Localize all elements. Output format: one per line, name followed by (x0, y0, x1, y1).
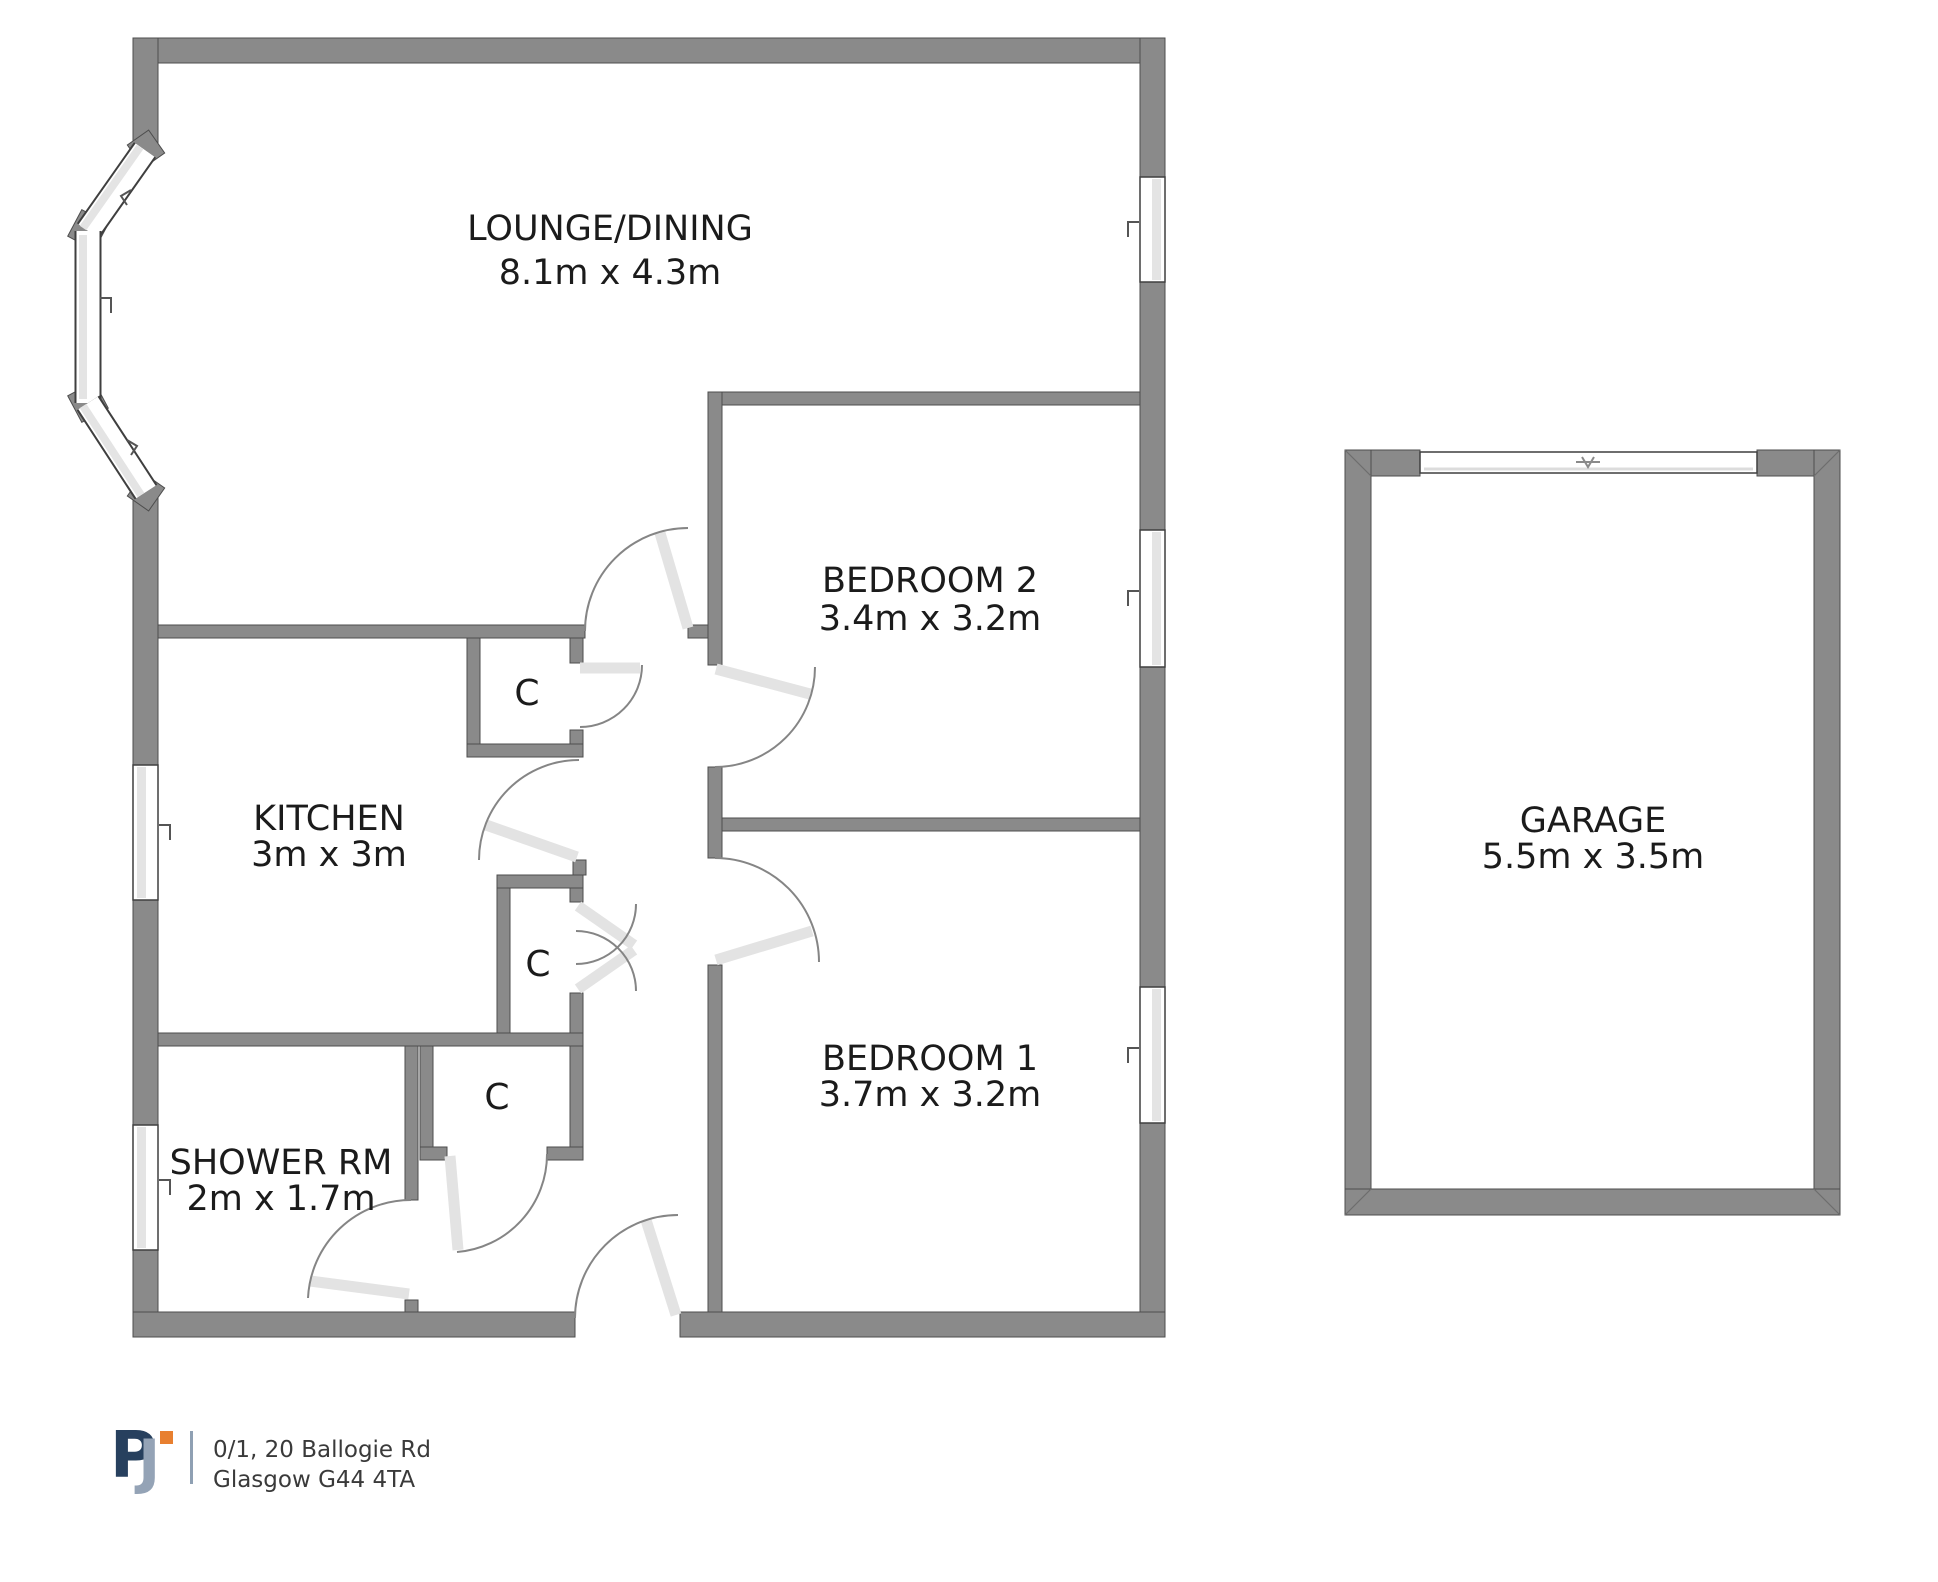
label-bedroom1-dims: 3.7m x 3.2m (819, 1075, 1041, 1115)
room-labels: LOUNGE/DINING 8.1m x 4.3m BEDROOM 2 3.4m… (170, 209, 1042, 1219)
floorplan-page: LOUNGE/DINING 8.1m x 4.3m BEDROOM 2 3.4m… (0, 0, 1938, 1582)
property-address: 0/1, 20 Ballogie Rd Glasgow G44 4TA (213, 1435, 431, 1495)
label-kitchen-name: KITCHEN (253, 799, 405, 839)
label-lounge-dims: 8.1m x 4.3m (499, 253, 721, 293)
garage: GARAGE 5.5m x 3.5m (1345, 450, 1840, 1215)
label-kitchen-dims: 3m x 3m (251, 835, 407, 875)
door-leaf-shower (310, 1281, 409, 1294)
door-leaf-entrance (646, 1220, 676, 1315)
label-bedroom1-name: BEDROOM 1 (822, 1039, 1038, 1079)
window-latch-icon (100, 298, 111, 313)
logo-divider (190, 1431, 193, 1484)
door-arc-closet3 (457, 1154, 547, 1252)
floor-plan-svg: LOUNGE/DINING 8.1m x 4.3m BEDROOM 2 3.4m… (0, 0, 1938, 1582)
window-latch-icon (1128, 591, 1139, 606)
label-closet-3: C (484, 1077, 509, 1118)
window-latch-icon (1128, 222, 1139, 237)
label-lounge-name: LOUNGE/DINING (467, 209, 753, 249)
door-arc-closet1 (580, 665, 642, 727)
door-leaf-closet3 (450, 1156, 458, 1250)
footer: P J 0/1, 20 Ballogie Rd Glasgow G44 4TA (105, 1422, 525, 1512)
main-house: LOUNGE/DINING 8.1m x 4.3m BEDROOM 2 3.4m… (68, 38, 1165, 1337)
label-garage-name: GARAGE (1520, 801, 1667, 841)
address-line-2: Glasgow G44 4TA (213, 1465, 431, 1495)
label-closet-2: C (525, 944, 550, 985)
garage-door (1420, 452, 1757, 473)
door-leaf-kitchen (486, 825, 577, 857)
label-closet-1: C (514, 673, 539, 714)
address-line-1: 0/1, 20 Ballogie Rd (213, 1435, 431, 1465)
door-leaf-bedroom2 (716, 669, 810, 694)
window-latch-icon (1128, 1048, 1139, 1063)
bay-window (83, 147, 146, 495)
label-bedroom2-name: BEDROOM 2 (822, 561, 1038, 601)
label-bedroom2-dims: 3.4m x 3.2m (819, 599, 1041, 639)
door-leaf-bedroom1 (716, 931, 812, 960)
label-shower-dims: 2m x 1.7m (186, 1179, 375, 1219)
doors (308, 528, 819, 1318)
window-latch-icon (159, 1180, 170, 1195)
logo-letter-j: J (138, 1432, 160, 1492)
door-leaf-lounge (660, 533, 688, 628)
label-garage-dims: 5.5m x 3.5m (1482, 837, 1704, 877)
window-latch-icon (159, 825, 170, 840)
logo-orange-dot-icon (160, 1431, 173, 1444)
label-shower-name: SHOWER RM (170, 1143, 393, 1183)
